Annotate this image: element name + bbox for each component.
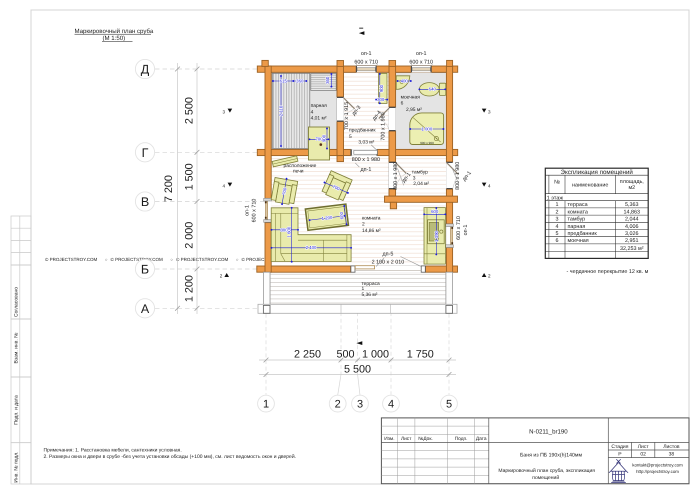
- svg-text:14,86 м²: 14,86 м²: [362, 228, 381, 234]
- svg-text:2 110: 2 110: [279, 105, 284, 116]
- svg-text:900: 900: [379, 84, 384, 92]
- svg-text:700 х 1 980: 700 х 1 980: [380, 112, 386, 140]
- svg-text:kontakt@projectstroy.com: kontakt@projectstroy.com: [632, 462, 683, 467]
- svg-text:- чердачное перекрытие 12 кв.: - чердачное перекрытие 12 кв. м: [567, 269, 649, 275]
- svg-text:4: 4: [488, 183, 491, 188]
- svg-text:4: 4: [311, 109, 314, 115]
- svg-text:(М 1:50): (М 1:50): [103, 35, 126, 42]
- svg-text:расположение: расположение: [284, 164, 317, 169]
- svg-text:600 х 710: 600 х 710: [456, 216, 462, 240]
- svg-text:тамбур: тамбур: [568, 217, 586, 223]
- svg-text:дп-1: дп-1: [462, 170, 473, 182]
- svg-text:Баня из ПБ 190х(h)140мм: Баня из ПБ 190х(h)140мм: [520, 453, 583, 459]
- svg-text:2 000: 2 000: [184, 222, 196, 249]
- svg-text:2,04 м²: 2,04 м²: [413, 181, 429, 187]
- svg-text:2: 2: [362, 222, 365, 228]
- svg-text:Изм.: Изм.: [384, 436, 394, 442]
- svg-text:600 х 710: 600 х 710: [409, 59, 433, 65]
- svg-text:◇: ◇: [236, 258, 239, 262]
- svg-text:4: 4: [223, 183, 226, 188]
- svg-text:© PROJECTSTROY.COM: © PROJECTSTROY.COM: [45, 257, 97, 262]
- svg-text:6: 6: [401, 101, 404, 107]
- svg-text:оп-1: оп-1: [361, 51, 372, 57]
- svg-text:5: 5: [446, 399, 452, 411]
- svg-text:800 х 1 980: 800 х 1 980: [455, 162, 461, 190]
- svg-text:предбанник: предбанник: [568, 231, 598, 237]
- svg-text:2: 2: [488, 273, 491, 278]
- svg-text:Маркировочный план сруба, эксп: Маркировочный план сруба, экспликация: [498, 468, 595, 474]
- svg-text:3: 3: [556, 217, 559, 223]
- svg-text:2 100 х 2 010: 2 100 х 2 010: [372, 260, 405, 266]
- svg-text:14,863: 14,863: [624, 209, 641, 215]
- svg-text:1 750: 1 750: [407, 348, 434, 360]
- svg-text:3,03 м²: 3,03 м²: [358, 140, 374, 146]
- svg-text:комната: комната: [568, 209, 588, 215]
- svg-text:800 х 1 980: 800 х 1 980: [393, 162, 399, 190]
- svg-text:Лист: Лист: [638, 444, 650, 450]
- svg-text:1 этаж: 1 этаж: [547, 195, 564, 201]
- svg-text:№: №: [554, 179, 560, 185]
- svg-text:2 250: 2 250: [294, 348, 321, 360]
- svg-text:Листов: Листов: [663, 444, 680, 450]
- svg-text:Согласовано: Согласовано: [14, 287, 20, 317]
- svg-text:Подп. и дата: Подп. и дата: [14, 395, 20, 425]
- svg-text:В: В: [141, 195, 149, 209]
- svg-text:Б: Б: [141, 263, 149, 277]
- svg-text:2,95 м²: 2,95 м²: [406, 107, 422, 113]
- svg-text:5: 5: [556, 231, 559, 237]
- svg-text:1 500: 1 500: [184, 163, 196, 190]
- svg-text:Стадия: Стадия: [611, 444, 628, 450]
- svg-text:360: 360: [325, 76, 330, 84]
- svg-text:Маркировочный план сруба: Маркировочный план сруба: [75, 28, 154, 35]
- svg-text:дп-5: дп-5: [382, 252, 393, 258]
- svg-text:парная: парная: [568, 224, 586, 230]
- svg-text:наименование: наименование: [572, 182, 608, 188]
- svg-text:900: 900: [322, 134, 327, 142]
- svg-text:3,026: 3,026: [625, 231, 639, 237]
- svg-text:◇: ◇: [171, 258, 174, 262]
- svg-text:615: 615: [280, 79, 288, 84]
- svg-text:3: 3: [223, 109, 226, 114]
- svg-text:2: 2: [556, 209, 559, 215]
- svg-text:600 х 710: 600 х 710: [354, 59, 378, 65]
- svg-text:1 200: 1 200: [184, 275, 196, 302]
- svg-text:4,006: 4,006: [625, 224, 639, 230]
- svg-text:5 500: 5 500: [344, 364, 371, 376]
- svg-text:2,044: 2,044: [625, 217, 639, 223]
- svg-text:1 600: 1 600: [286, 226, 291, 237]
- svg-text:5: 5: [349, 134, 352, 140]
- svg-text:м2: м2: [628, 185, 635, 191]
- svg-text:2,951: 2,951: [625, 238, 639, 244]
- svg-text:терраса: терраса: [568, 202, 588, 208]
- svg-text:2: 2: [335, 399, 341, 411]
- svg-text:4: 4: [556, 224, 559, 230]
- svg-text:400: 400: [401, 78, 409, 83]
- svg-text:3: 3: [413, 175, 416, 181]
- svg-text:7 200: 7 200: [163, 175, 175, 202]
- svg-text:600: 600: [339, 211, 345, 219]
- svg-text:3: 3: [357, 399, 363, 411]
- svg-text:Г: Г: [142, 146, 149, 160]
- svg-text:© PROJECTSTROY.COM: © PROJECTSTROY.COM: [176, 257, 228, 262]
- svg-text:900 х 900: 900 х 900: [420, 141, 434, 145]
- svg-text:Подп.: Подп.: [455, 436, 468, 442]
- svg-text:N-0211_br190: N-0211_br190: [529, 428, 568, 435]
- svg-text:5,36 м²: 5,36 м²: [362, 292, 378, 298]
- svg-text:А: А: [141, 302, 150, 316]
- svg-text:1 000: 1 000: [362, 348, 389, 360]
- svg-text:оп-1: оп-1: [245, 205, 251, 216]
- svg-text:2. Размеры окна и двери в сруб: 2. Размеры окна и двери в срубе -без уче…: [44, 454, 297, 460]
- svg-text:640: 640: [429, 87, 437, 92]
- svg-text:предбанник: предбанник: [349, 128, 376, 134]
- svg-text:6: 6: [556, 238, 559, 244]
- svg-text:2 400: 2 400: [306, 245, 317, 250]
- svg-text:◇: ◇: [105, 258, 108, 262]
- svg-text:Лист: Лист: [401, 436, 412, 442]
- svg-text:4,01 м²: 4,01 м²: [311, 116, 327, 122]
- svg-text:площадь,: площадь,: [620, 179, 645, 185]
- svg-text:5,363: 5,363: [625, 202, 639, 208]
- svg-text:печи: печи: [293, 169, 304, 174]
- svg-text:38: 38: [669, 452, 675, 458]
- svg-text:тамбур: тамбур: [412, 169, 428, 175]
- svg-text:600 х 710: 600 х 710: [252, 199, 258, 223]
- svg-text:моечная: моечная: [568, 238, 589, 244]
- svg-text:4: 4: [388, 399, 394, 411]
- svg-text:терраса: терраса: [362, 282, 381, 287]
- svg-text:моечная: моечная: [401, 96, 421, 101]
- svg-text:http://projectstroy.com: http://projectstroy.com: [636, 469, 679, 474]
- svg-text:1 390: 1 390: [434, 230, 439, 241]
- svg-text:02: 02: [640, 452, 646, 458]
- svg-text:помещений: помещений: [532, 475, 559, 481]
- svg-text:Д: Д: [141, 63, 150, 77]
- svg-text:360: 360: [296, 79, 304, 84]
- svg-text:300: 300: [377, 97, 385, 102]
- svg-text:3: 3: [488, 109, 491, 114]
- svg-text:комната: комната: [362, 216, 381, 221]
- svg-text:500: 500: [336, 348, 354, 360]
- svg-text:оп-1: оп-1: [416, 51, 427, 57]
- svg-text:32,253 м²: 32,253 м²: [620, 246, 644, 252]
- svg-text:парная: парная: [311, 104, 328, 109]
- svg-text:1: 1: [362, 286, 365, 292]
- svg-text:1: 1: [263, 399, 269, 411]
- svg-text:дп-1: дп-1: [360, 167, 371, 173]
- svg-text:Инв. № подл.: Инв. № подл.: [14, 451, 20, 482]
- svg-text:Р: Р: [618, 452, 622, 458]
- svg-text:Примечания: 1. Расстановка меб: Примечания: 1. Расстановка мебели, санте…: [44, 447, 182, 453]
- svg-text:№Док.: №Док.: [418, 436, 433, 442]
- svg-text:Взам. инв. №: Взам. инв. №: [14, 332, 20, 364]
- svg-text:600: 600: [431, 209, 439, 214]
- svg-text:2 500: 2 500: [184, 97, 196, 124]
- svg-text:1: 1: [556, 202, 559, 208]
- svg-text:оп-1: оп-1: [463, 225, 469, 236]
- svg-text:Экспликация помещений: Экспликация помещений: [561, 169, 634, 176]
- svg-text:© PROJECTSTROY.COM: © PROJECTSTROY.COM: [111, 257, 163, 262]
- svg-text:700 х 1 915: 700 х 1 915: [344, 102, 350, 130]
- svg-text:1 000: 1 000: [421, 126, 432, 131]
- svg-text:Дата: Дата: [476, 436, 487, 442]
- svg-text:2: 2: [220, 273, 223, 278]
- svg-text:800 х 1 980: 800 х 1 980: [352, 157, 380, 163]
